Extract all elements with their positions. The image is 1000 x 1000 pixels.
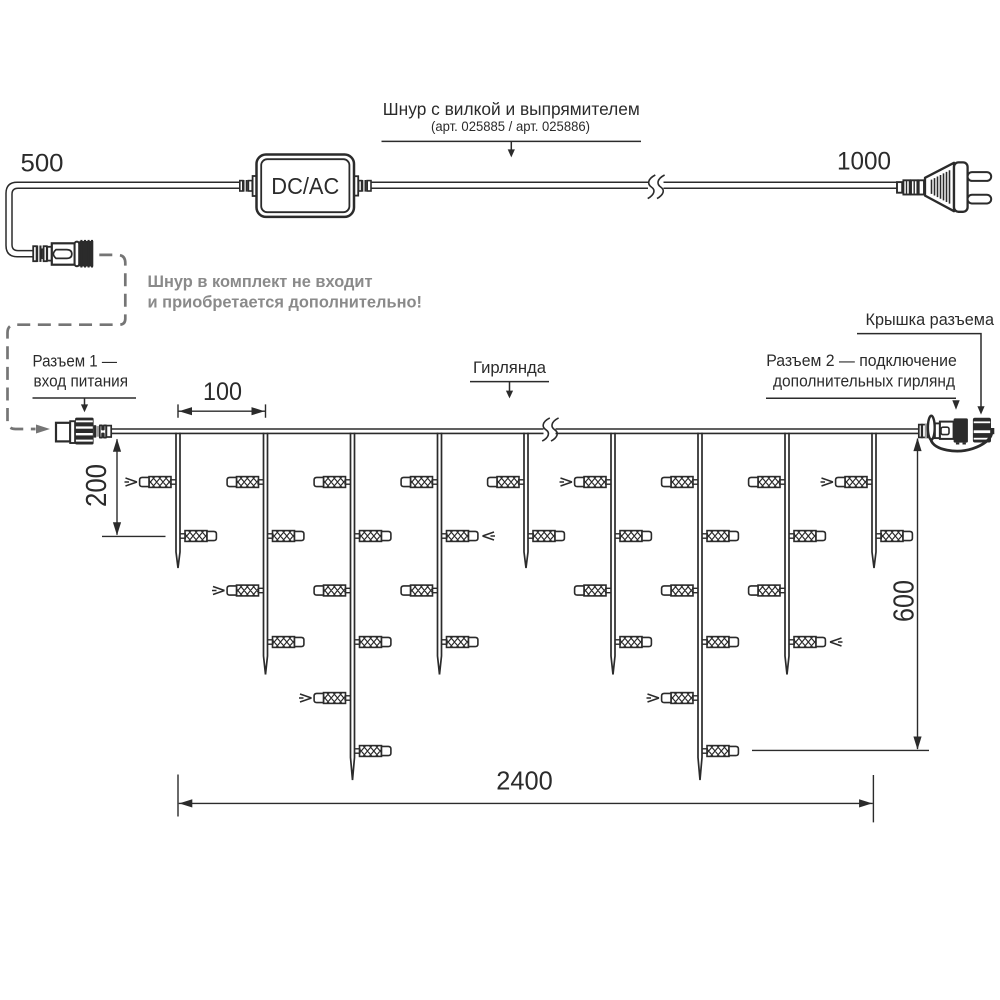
svg-text:2400: 2400 bbox=[496, 766, 553, 796]
svg-text:DC/AC: DC/AC bbox=[271, 173, 339, 199]
svg-text:Разъем 2 — подключение: Разъем 2 — подключение bbox=[766, 351, 957, 370]
svg-text:дополнительных гирлянд: дополнительных гирлянд bbox=[773, 372, 955, 391]
svg-text:Шнур с вилкой и выпрямителем: Шнур с вилкой и выпрямителем bbox=[383, 99, 640, 119]
svg-text:Гирлянда: Гирлянда bbox=[473, 358, 547, 377]
svg-text:Разъем 1 —: Разъем 1 — bbox=[33, 351, 118, 370]
svg-text:600: 600 bbox=[889, 580, 921, 622]
svg-text:100: 100 bbox=[203, 378, 242, 406]
svg-text:1000: 1000 bbox=[837, 148, 891, 176]
svg-text:200: 200 bbox=[81, 464, 113, 507]
svg-text:вход питания: вход питания bbox=[34, 372, 129, 391]
svg-text:Крышка разъема: Крышка разъема bbox=[866, 310, 995, 329]
svg-text:(арт. 025885 / арт. 025886): (арт. 025885 / арт. 025886) bbox=[431, 119, 590, 134]
svg-text:500: 500 bbox=[21, 149, 64, 177]
svg-text:Шнур в комплект не входит: Шнур в комплект не входит bbox=[148, 272, 373, 291]
svg-text:и приобретается дополнительно!: и приобретается дополнительно! bbox=[148, 292, 423, 311]
